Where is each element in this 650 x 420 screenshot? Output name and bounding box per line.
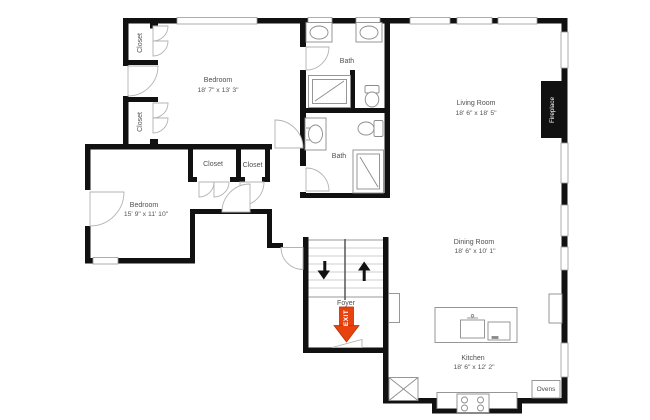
- sink-icon: [360, 26, 378, 39]
- wall-segment: [190, 213, 195, 264]
- wall-segment: [383, 237, 389, 404]
- window: [561, 143, 568, 183]
- sink-icon: [309, 125, 323, 143]
- up-arrow-icon: [363, 271, 366, 282]
- island-sink-icon: [461, 320, 485, 338]
- burner-icon: [462, 405, 468, 411]
- door-arc: [199, 182, 214, 197]
- dishwasher-icon: [488, 322, 510, 340]
- room-label-bedroom2: Bedroom: [130, 202, 158, 210]
- door-arc: [153, 118, 168, 133]
- wall-segment: [332, 18, 356, 24]
- door-arc: [214, 182, 229, 197]
- door-arc: [281, 248, 303, 270]
- room-dims-bedroom2: 15' 9" x 11' 10": [124, 211, 168, 219]
- doors: [90, 26, 362, 348]
- room-label-kitchen: Kitchen: [461, 355, 484, 363]
- fireplace-label: Fireplace: [549, 97, 557, 123]
- wall-segment: [123, 60, 158, 65]
- wall-segment: [562, 236, 568, 247]
- wall-segment: [188, 177, 197, 182]
- wall-segment: [300, 18, 306, 47]
- wall-segment: [123, 18, 129, 66]
- wall-segment: [123, 18, 177, 24]
- wall-segment: [262, 177, 270, 182]
- toilet-icon: [374, 121, 383, 137]
- wall-segment: [118, 258, 195, 264]
- window: [561, 247, 568, 270]
- room-label-foyer: Foyer: [337, 300, 355, 308]
- exit-label: EXIT: [343, 310, 351, 326]
- wall-segment: [230, 177, 245, 182]
- closet-label: Closet: [203, 161, 223, 169]
- wall-cabinet: [549, 294, 562, 323]
- exit-arrow-head: [334, 326, 359, 343]
- up-arrow-icon: [358, 262, 371, 271]
- room-dims-kitchen: 18' 6" x 12' 2": [453, 364, 494, 372]
- wall-segment: [300, 108, 390, 113]
- ovens-label: Ovens: [537, 386, 556, 394]
- wall-segment: [85, 226, 91, 264]
- burner-icon: [478, 405, 484, 411]
- floor-plan: Bedroom 18' 7" x 13' 3" Bath Living Room…: [0, 0, 650, 420]
- toilet-icon: [358, 122, 374, 135]
- wall-segment: [123, 96, 129, 149]
- kitchen-fixtures: [389, 294, 563, 413]
- wall-segment: [492, 18, 498, 24]
- faucet-icon: [471, 315, 474, 318]
- wall-segment: [517, 398, 567, 404]
- window: [410, 18, 450, 25]
- room-label-bath2: Bath: [332, 153, 346, 161]
- door-arc: [306, 47, 329, 70]
- burner-icon: [478, 397, 484, 403]
- room-label-living: Living Room: [457, 100, 496, 108]
- door-arc: [306, 168, 329, 191]
- door-arc: [90, 192, 124, 226]
- window: [93, 258, 118, 265]
- wall-segment: [85, 144, 272, 150]
- closet-label: Closet: [137, 33, 145, 53]
- floor-plan-graphic: [0, 0, 650, 420]
- staircase: [309, 239, 384, 300]
- wall-segment: [562, 18, 568, 32]
- window: [561, 205, 568, 236]
- window: [561, 343, 568, 377]
- window: [561, 32, 568, 68]
- room-label-bedroom1: Bedroom: [204, 77, 232, 85]
- door-arc: [275, 120, 303, 148]
- room-dims-dining: 18' 6" x 10' 1": [454, 248, 495, 256]
- wall-segment: [85, 144, 91, 190]
- window: [457, 18, 492, 25]
- window: [498, 18, 537, 25]
- wall-segment: [267, 209, 272, 248]
- room-label-bath1: Bath: [340, 58, 354, 66]
- down-arrow-icon: [318, 271, 331, 280]
- wall-segment: [562, 183, 568, 205]
- wall-segment: [303, 237, 309, 353]
- wall-segment: [300, 193, 390, 198]
- room-dims-living: 18' 6" x 18' 5": [455, 110, 496, 118]
- sink-icon: [310, 26, 328, 39]
- wall-segment: [303, 348, 388, 354]
- wall-cabinet: [389, 294, 400, 323]
- room-dims-bedroom1: 18' 7" x 13' 3": [197, 87, 238, 95]
- wall-segment: [562, 377, 568, 404]
- door-arc: [153, 26, 168, 41]
- closet-label: Closet: [243, 162, 263, 170]
- dishwasher-handle: [492, 337, 498, 339]
- wall-segment: [123, 97, 158, 102]
- door-arc: [153, 41, 168, 56]
- wall-segment: [150, 139, 158, 144]
- toilet-icon: [365, 92, 379, 107]
- closet-label: Closet: [137, 112, 145, 132]
- room-label-dining: Dining Room: [454, 239, 494, 247]
- wall-segment: [85, 258, 93, 264]
- window: [177, 18, 257, 25]
- wall-segment: [450, 18, 457, 24]
- door-arc: [153, 103, 168, 118]
- down-arrow-icon: [323, 261, 326, 272]
- burner-icon: [462, 397, 468, 403]
- door-arc: [128, 66, 158, 96]
